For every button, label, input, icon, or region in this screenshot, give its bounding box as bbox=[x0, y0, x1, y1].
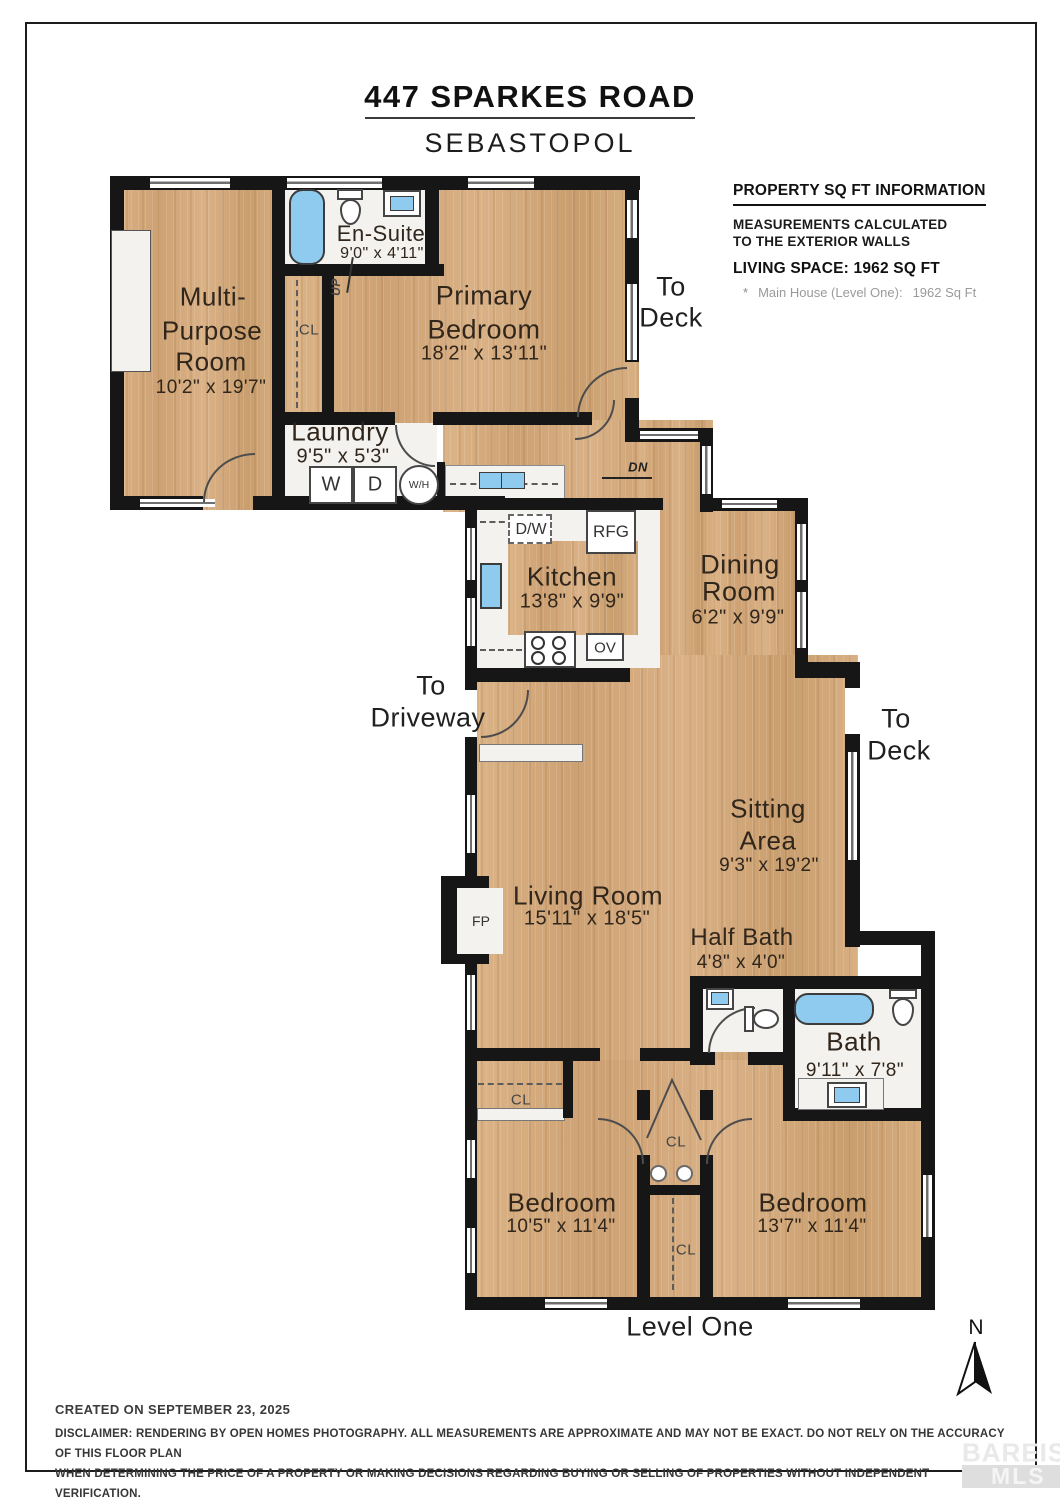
corridor-sink bbox=[479, 472, 502, 489]
room-dims: 13'7" x 11'4" bbox=[757, 1216, 866, 1238]
exit-label: To bbox=[881, 704, 911, 735]
room-dims: 9'11" x 7'8" bbox=[806, 1060, 904, 1082]
floor-plan: Multi- Purpose Room 10'2" x 19'7" En-Sui… bbox=[0, 0, 1060, 1498]
wall bbox=[425, 176, 439, 276]
room-label: Laundry bbox=[291, 417, 388, 448]
wall bbox=[465, 668, 630, 682]
wall bbox=[640, 1048, 702, 1061]
window bbox=[467, 1228, 475, 1273]
exit-label: To bbox=[656, 272, 686, 303]
room-label: Bath bbox=[826, 1027, 882, 1058]
water-heater-label: W/H bbox=[409, 479, 429, 491]
sink-basin bbox=[711, 992, 729, 1005]
window bbox=[923, 1175, 932, 1237]
room-label: Room bbox=[175, 347, 246, 378]
room-dims: 18'2" x 13'11" bbox=[421, 343, 547, 366]
window bbox=[797, 524, 806, 580]
room-dims: 4'8" x 4'0" bbox=[697, 952, 786, 974]
wall bbox=[637, 1185, 713, 1195]
room-dims: 6'2" x 9'9" bbox=[692, 607, 785, 630]
window bbox=[797, 592, 806, 648]
window bbox=[848, 752, 857, 860]
sliding-door bbox=[640, 431, 698, 439]
door-knob bbox=[676, 1165, 693, 1182]
room-label: Sitting bbox=[730, 794, 806, 825]
window bbox=[467, 975, 475, 1030]
wall bbox=[272, 176, 285, 510]
north-arrow-icon bbox=[952, 1338, 998, 1398]
burner bbox=[552, 651, 566, 665]
sink-basin bbox=[834, 1087, 860, 1103]
exit-label: Deck bbox=[639, 303, 703, 334]
wall bbox=[563, 1060, 573, 1118]
room-label: Half Bath bbox=[690, 924, 793, 952]
sink-basin bbox=[390, 196, 414, 211]
dishwasher-label: D/W bbox=[515, 521, 546, 539]
created-date: CREATED ON SEPTEMBER 23, 2025 bbox=[55, 1402, 290, 1417]
window bbox=[702, 446, 711, 494]
wall bbox=[700, 976, 935, 989]
burner bbox=[552, 636, 566, 650]
wall bbox=[465, 1048, 600, 1061]
burner bbox=[531, 636, 545, 650]
wall bbox=[437, 498, 663, 510]
room-dims: 9'3" x 19'2" bbox=[719, 855, 819, 877]
room-dims: 10'2" x 19'7" bbox=[156, 377, 267, 399]
stairs-down-label: DN bbox=[628, 460, 648, 475]
fireplace-label: FP bbox=[472, 913, 490, 929]
room-label: Bedroom bbox=[759, 1188, 868, 1219]
closet-dashed-line bbox=[478, 1083, 562, 1085]
level-label: Level One bbox=[626, 1312, 754, 1343]
door-knob bbox=[650, 1165, 667, 1182]
watermark-line2: MLS bbox=[962, 1465, 1060, 1488]
floor-plan-page: 447 SPARKES ROAD SEBASTOPOL PROPERTY SQ … bbox=[0, 0, 1060, 1498]
wall bbox=[278, 264, 444, 276]
wall-opening bbox=[111, 230, 151, 372]
disclaimer-line2: WHEN DETERMINING THE PRICE OF A PROPERTY… bbox=[55, 1464, 1005, 1498]
bathtub bbox=[794, 993, 874, 1025]
closet-label: CL bbox=[299, 322, 319, 339]
window bbox=[467, 528, 475, 580]
window bbox=[287, 178, 382, 188]
kitchen-sink bbox=[480, 563, 502, 609]
stairs-down-line bbox=[602, 477, 652, 479]
room-label: Multi- bbox=[180, 282, 247, 313]
closet-dashed-line bbox=[296, 280, 298, 408]
window bbox=[627, 284, 637, 360]
washer-label: W bbox=[322, 474, 341, 497]
room-label: Area bbox=[740, 826, 797, 857]
wall bbox=[433, 412, 592, 425]
room-label: En-Suite bbox=[337, 221, 425, 247]
north-label: N bbox=[968, 1316, 983, 1340]
burner bbox=[531, 651, 545, 665]
wall bbox=[322, 276, 334, 424]
window bbox=[150, 178, 230, 188]
dryer-label: D bbox=[368, 474, 382, 497]
room-dims: 9'0" x 4'11" bbox=[340, 245, 424, 263]
room-label: Kitchen bbox=[527, 562, 617, 593]
exit-label: Deck bbox=[867, 736, 931, 767]
window bbox=[467, 1140, 475, 1178]
room-dims: 9'5" x 5'3" bbox=[297, 446, 390, 469]
window bbox=[468, 178, 534, 188]
window bbox=[788, 1299, 860, 1308]
wall bbox=[700, 1155, 713, 1310]
room-dims: 10'5" x 11'4" bbox=[506, 1216, 615, 1238]
bathtub bbox=[289, 189, 325, 265]
exit-label: Driveway bbox=[370, 703, 485, 734]
bifold-door bbox=[643, 1076, 705, 1142]
living-room-shelf bbox=[479, 744, 583, 762]
toilet bbox=[753, 1009, 779, 1029]
room-label: Purpose bbox=[162, 316, 262, 347]
window bbox=[545, 1299, 607, 1308]
closet-shelf bbox=[477, 1108, 565, 1121]
window bbox=[627, 200, 637, 238]
counter-dashed-line bbox=[480, 649, 522, 651]
refrigerator-label: RFG bbox=[593, 522, 629, 542]
room-label: Room bbox=[702, 577, 776, 608]
disclaimer-line1: DISCLAIMER: RENDERING BY OPEN HOMES PHOT… bbox=[55, 1424, 1005, 1464]
exit-label: To bbox=[416, 671, 446, 702]
window bbox=[467, 795, 475, 853]
watermark-line1: BAREIS® bbox=[962, 1438, 1060, 1465]
closet-label: CL bbox=[676, 1242, 696, 1259]
mls-watermark: BAREIS® MLS bbox=[962, 1438, 1060, 1488]
wall bbox=[637, 1155, 650, 1310]
closet-dashed-line bbox=[672, 1198, 674, 1290]
window bbox=[467, 598, 475, 646]
closet-label: CL bbox=[511, 1092, 531, 1109]
room-dims: 15'11" x 18'5" bbox=[524, 908, 650, 931]
disclaimer: DISCLAIMER: RENDERING BY OPEN HOMES PHOT… bbox=[55, 1424, 1005, 1498]
closet-label: CL bbox=[666, 1134, 686, 1151]
room-label: Primary bbox=[436, 281, 533, 312]
room-label: Bedroom bbox=[508, 1188, 617, 1219]
stairs-up-label: UP bbox=[329, 278, 343, 296]
deck-door-gap bbox=[845, 688, 860, 734]
oven-label: OV bbox=[594, 640, 616, 657]
room-label: Bedroom bbox=[427, 315, 540, 346]
room-dims: 13'8" x 9'9" bbox=[520, 591, 625, 614]
corridor-sink bbox=[501, 472, 525, 489]
window bbox=[722, 500, 777, 508]
